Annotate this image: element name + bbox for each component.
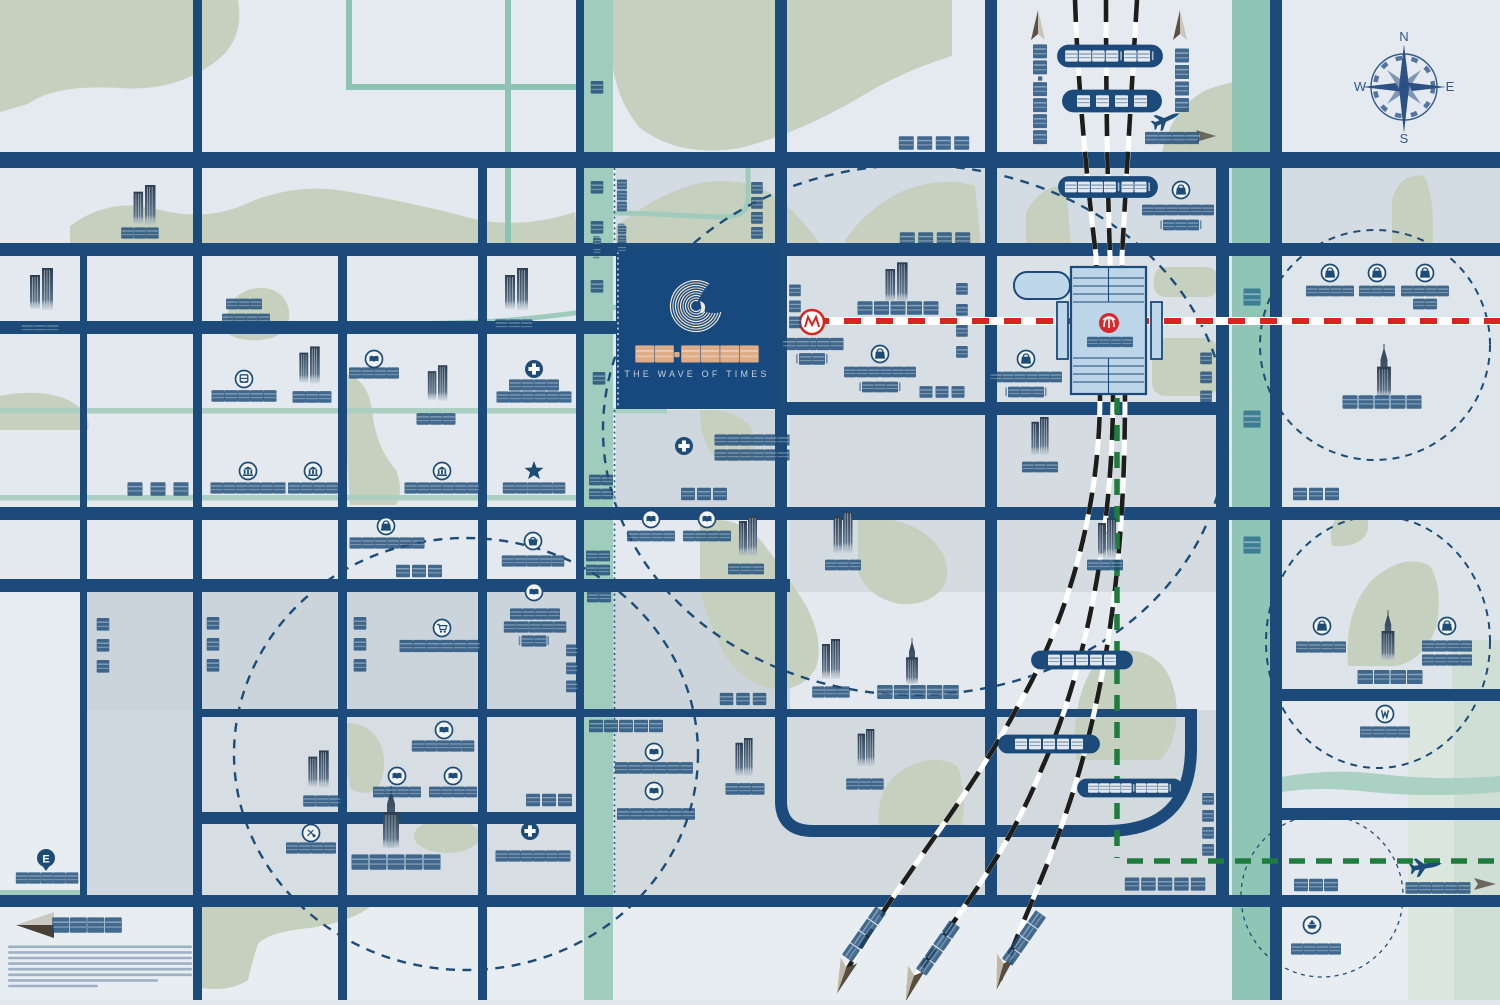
svg-text:E: E xyxy=(42,854,49,866)
svg-text:E: E xyxy=(1446,79,1455,94)
svg-text:THE WAVE OF TIMES: THE WAVE OF TIMES xyxy=(624,369,769,379)
svg-text:N: N xyxy=(1399,29,1408,44)
svg-text:S: S xyxy=(1400,131,1409,146)
svg-text:W: W xyxy=(1354,79,1367,94)
